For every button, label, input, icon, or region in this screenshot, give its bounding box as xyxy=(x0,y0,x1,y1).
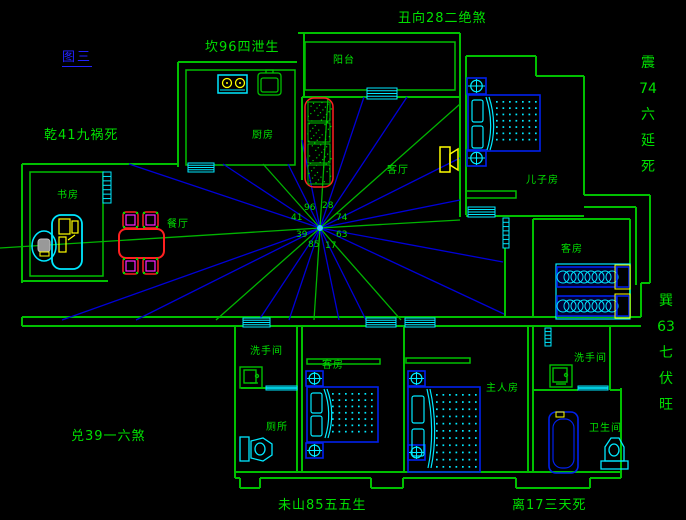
kitchen-door-hatch xyxy=(188,163,214,172)
annotation-bottom-center: 未山85五五生 xyxy=(278,494,367,513)
south-wall-window-1 xyxy=(243,318,270,327)
fan-icon xyxy=(467,78,486,94)
washroom-e-door xyxy=(545,328,551,346)
dining-chair xyxy=(123,212,138,228)
toilet-se xyxy=(601,438,628,469)
basin-washroom-w xyxy=(240,367,262,388)
room-label-kitchen: 厨房 xyxy=(252,126,274,141)
room-label-guest-ne: 客房 xyxy=(561,240,583,255)
room-label-bathroom: 卫生间 xyxy=(589,419,622,434)
fan-icon xyxy=(306,371,323,386)
speaker-icon xyxy=(440,147,458,172)
study-desk xyxy=(52,215,82,269)
compass-number-nnw: 96 xyxy=(304,203,315,213)
dining-table xyxy=(119,229,164,258)
fan-icon xyxy=(467,150,486,166)
room-label-guest-s: 客房 xyxy=(322,356,344,371)
room-label-study: 书房 xyxy=(57,186,79,201)
dining-chairs xyxy=(123,212,158,274)
guest-s-bed xyxy=(307,387,378,442)
room-label-washroom-w: 洗手间 xyxy=(250,342,283,357)
room-label-toilet: 厕所 xyxy=(266,418,288,433)
hall-window xyxy=(503,218,509,248)
guest-ne-beds xyxy=(556,264,630,319)
vertical-char: 74 xyxy=(639,76,657,102)
mattress-dots xyxy=(332,393,373,433)
compass-number-nne: 28 xyxy=(322,201,333,211)
kitchen-sink xyxy=(258,70,281,95)
mattress-dots xyxy=(436,394,477,468)
room-label-sons-room: 儿子房 xyxy=(526,171,559,186)
basin-washroom-e xyxy=(550,365,572,387)
figure-label: 图三 xyxy=(62,46,92,67)
vertical-char: 六 xyxy=(641,102,655,128)
bathroom-partition xyxy=(578,386,608,390)
compass-center-point xyxy=(318,226,323,231)
compass-number-ene: 74 xyxy=(336,213,347,223)
vertical-char: 延 xyxy=(641,128,655,154)
annotation-right-upper: 震74六延死 xyxy=(636,50,660,180)
south-wall-window-2 xyxy=(366,318,396,327)
south-wall-window-3 xyxy=(405,318,435,327)
sons-room-shelf xyxy=(466,191,516,198)
stove xyxy=(218,75,247,93)
sons-room-window xyxy=(468,207,495,217)
vertical-char: 伏 xyxy=(659,366,673,392)
dining-chair xyxy=(143,212,158,228)
annotation-bottom-right: 离17三天死 xyxy=(512,494,587,513)
vertical-char: 震 xyxy=(641,50,655,76)
mattress-dots xyxy=(496,101,537,141)
balcony-door-window xyxy=(367,88,397,99)
annotation-right-lower: 巽63七伏旺 xyxy=(654,288,678,418)
vertical-char: 旺 xyxy=(659,392,673,418)
toilet-partition xyxy=(266,386,297,390)
room-label-living: 客厅 xyxy=(387,161,409,176)
living-plant-cabinet xyxy=(305,98,333,187)
vertical-char: 63 xyxy=(657,314,675,340)
master-shelf xyxy=(406,358,470,363)
room-label-master: 主人房 xyxy=(486,379,519,394)
annotation-bottom-left: 兑39一六煞 xyxy=(71,425,146,444)
floor-plan-page: 图三 丑向28二绝煞 坎96四泄生 乾41九祸死 兑39一六煞 未山85五五生 … xyxy=(0,0,686,520)
room-label-balcony: 阳台 xyxy=(333,51,355,66)
fan-icon xyxy=(306,443,323,458)
compass-number-ssw: 85 xyxy=(308,240,319,250)
dining-chair xyxy=(143,258,158,274)
study-window xyxy=(103,172,111,203)
compass-rays-blue xyxy=(62,97,504,320)
compass-number-ese: 63 xyxy=(336,230,347,240)
fan-icon xyxy=(408,445,425,460)
sons-room-bed xyxy=(468,95,540,151)
room-label-dining: 餐厅 xyxy=(167,215,189,230)
vertical-char: 七 xyxy=(659,340,673,366)
toilet-sw xyxy=(240,437,272,461)
compass-number-wnw: 41 xyxy=(291,213,302,223)
annotation-top-left: 坎96四泄生 xyxy=(205,36,280,55)
annotation-left: 乾41九祸死 xyxy=(44,124,119,143)
balcony-box xyxy=(305,42,455,90)
bathtub xyxy=(549,412,578,473)
vertical-char: 死 xyxy=(641,154,655,180)
room-label-washroom-e: 洗手间 xyxy=(574,349,607,364)
dining-chair xyxy=(123,258,138,274)
annotation-top: 丑向28二绝煞 xyxy=(398,7,487,26)
compass-number-wsw: 39 xyxy=(296,230,307,240)
compass-number-sse: 17 xyxy=(325,241,336,251)
fan-icon xyxy=(408,371,425,386)
vertical-char: 巽 xyxy=(659,288,673,314)
